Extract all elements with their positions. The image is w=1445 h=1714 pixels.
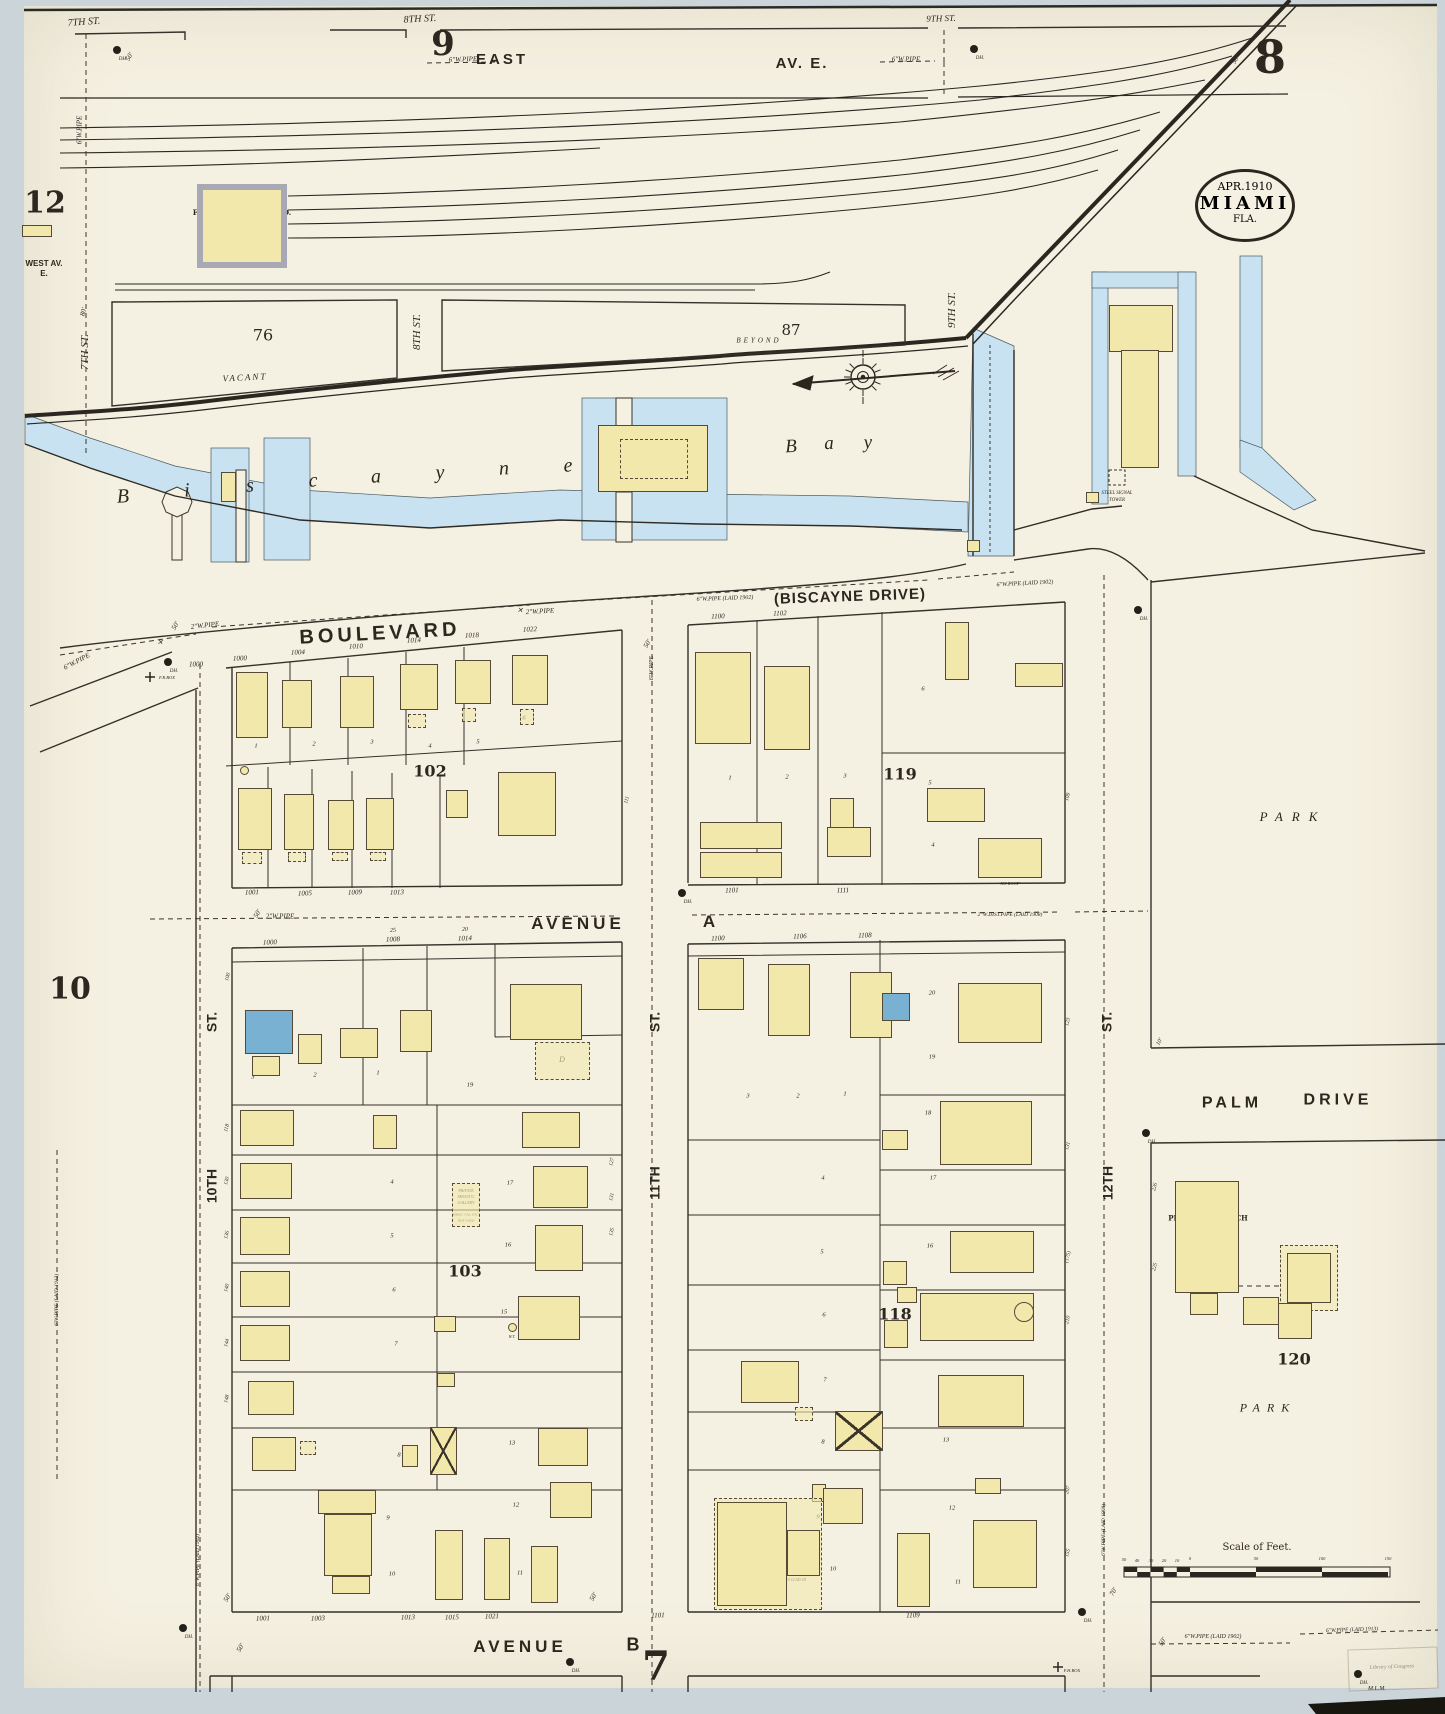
map-label: 1014	[407, 637, 421, 645]
san-carlos-hotel	[717, 1502, 787, 1606]
sheet-number: 8	[1240, 30, 1300, 84]
building	[340, 676, 374, 728]
map-label: 4	[821, 1176, 824, 1183]
double-hydrant-dot	[179, 1624, 187, 1632]
building	[408, 714, 426, 728]
double-hydrant-dot	[113, 46, 121, 54]
map-label: e	[563, 455, 573, 476]
map-label: 1111	[837, 887, 850, 895]
map-label: 5	[820, 1250, 823, 1257]
map-label: 1013	[401, 1614, 415, 1622]
map-label: 5	[476, 740, 479, 747]
building	[698, 958, 744, 1010]
map-label: 1018	[465, 632, 479, 640]
building	[328, 800, 354, 850]
label-park: PARK	[1260, 810, 1327, 824]
map-label: DH.	[684, 899, 692, 904]
building	[366, 798, 394, 850]
building	[531, 1546, 558, 1603]
steel-signal-tower-label: STEEL SIGNAL	[1102, 490, 1133, 495]
building	[240, 1217, 290, 1255]
map-label: 5	[390, 1234, 393, 1241]
help-quarters	[823, 1488, 863, 1524]
building	[437, 1373, 455, 1387]
map-label: 1001	[256, 1615, 270, 1623]
map-label: 6	[822, 1313, 825, 1320]
seal-city: MIAMI	[1198, 193, 1292, 214]
double-hydrant-dot	[1134, 606, 1142, 614]
map-label: 1	[376, 1071, 379, 1078]
map-label: 3	[370, 740, 373, 747]
building	[242, 852, 262, 864]
scan-edge	[1308, 1697, 1445, 1714]
label-9th-st: 9TH ST.	[926, 14, 956, 24]
map-label: 7	[394, 1342, 397, 1349]
building	[498, 772, 556, 836]
map-label: 1003	[311, 1615, 325, 1623]
label-avenue-b: B	[627, 1636, 640, 1655]
map-label: 4	[428, 744, 431, 751]
legend-swatch	[22, 225, 52, 237]
fec-roundhouse	[197, 184, 287, 268]
map-label: 10	[1175, 1559, 1180, 1564]
map-label: 8	[821, 1440, 824, 1447]
label-11th-st: 11TH	[648, 1166, 663, 1199]
map-label: 1	[728, 776, 731, 783]
map-label: 13	[943, 1438, 950, 1445]
label-park: PARK	[1240, 1402, 1296, 1415]
map-label: B	[785, 437, 798, 458]
fair-building	[1121, 350, 1159, 468]
map-label: 6"W.PIPE	[649, 656, 655, 680]
label-10th-st: ST.	[205, 1012, 220, 1032]
map-label: n	[498, 458, 509, 479]
auto-house	[897, 1287, 917, 1303]
curios-shop	[1015, 663, 1063, 687]
map-label: 2"W.DIST.PIPE (LAID 1908)	[978, 912, 1043, 918]
map-label: 6"W.PIPE	[76, 116, 83, 145]
building	[795, 1407, 813, 1421]
map-label: DH.	[1148, 1139, 1156, 1144]
adjacent-sheet-10: 10	[49, 973, 91, 1005]
building	[332, 852, 348, 861]
map-label: 1000	[263, 939, 277, 947]
building	[1243, 1297, 1279, 1325]
map-label: 13	[509, 1441, 516, 1448]
building	[508, 1323, 517, 1332]
map-label: 2	[796, 1094, 799, 1101]
label-palm-drive: DRIVE	[1304, 1093, 1373, 1110]
map-label: 1	[254, 744, 257, 751]
map-label: 2"W.PIPE	[526, 608, 555, 617]
building	[288, 852, 306, 862]
map-label: 1000	[233, 655, 247, 663]
map-label: B	[116, 486, 129, 508]
building	[940, 1101, 1032, 1165]
building	[520, 709, 534, 725]
double-hydrant-dot	[1078, 1608, 1086, 1616]
building	[252, 1056, 280, 1076]
map-label: DH.	[119, 56, 127, 61]
building	[245, 1010, 293, 1054]
building	[741, 1361, 799, 1403]
map-label: 1005	[298, 890, 312, 898]
unfinished-building	[978, 838, 1042, 878]
building	[973, 1520, 1037, 1588]
label-west-av-e: WEST AV.	[25, 260, 62, 268]
seal-date: APR.1910	[1198, 180, 1292, 193]
map-label: 30	[1149, 1559, 1154, 1564]
trinity-church	[318, 1490, 376, 1514]
map-label: 9	[386, 1516, 389, 1523]
label-8th-st: 8TH ST.	[412, 314, 424, 350]
map-label: 25	[390, 928, 396, 935]
map-label: 4	[931, 843, 934, 850]
map-label: 12	[513, 1503, 520, 1510]
building	[700, 852, 782, 878]
map-label: 1102	[773, 610, 787, 618]
map-label: DH.	[170, 668, 178, 673]
building	[446, 790, 468, 818]
building	[240, 1163, 292, 1199]
label-10th-st: 10TH	[205, 1169, 220, 1203]
building	[975, 1478, 1001, 1494]
yacht-club	[620, 439, 688, 479]
building	[700, 822, 782, 849]
label-12th-st: ST.	[1100, 1012, 1115, 1032]
label-9th-st: 9TH ST.	[947, 292, 959, 328]
map-label: 1	[843, 1092, 846, 1099]
map-label: a	[370, 466, 381, 487]
map-label: 6"W.PIPE (LAID 1902)	[195, 1534, 201, 1586]
map-label: 6	[392, 1288, 395, 1295]
building	[300, 1441, 316, 1455]
building	[370, 852, 386, 861]
building	[835, 1411, 883, 1451]
publisher-seal: APR.1910 MIAMI FLA.	[1195, 169, 1295, 242]
building	[252, 1437, 296, 1471]
map-label: 2	[785, 775, 788, 782]
map-label: DH.	[1140, 616, 1148, 621]
map-label: 50	[1254, 1557, 1259, 1562]
office-building	[897, 1533, 930, 1607]
map-label: 1021	[485, 1613, 499, 1621]
map-label: F.R.BOX	[159, 676, 175, 681]
map-label: 1015	[445, 1614, 459, 1622]
map-label: c	[308, 470, 318, 491]
building	[430, 1427, 457, 1475]
building	[298, 1034, 322, 1064]
building	[402, 1445, 418, 1467]
building	[282, 680, 312, 728]
map-label: 1008	[386, 936, 400, 944]
building	[522, 1112, 580, 1148]
block-102: 102	[413, 764, 446, 781]
map-label: ✕	[157, 639, 163, 646]
map-label: i	[184, 480, 191, 501]
block-120: 120	[1277, 1352, 1310, 1369]
double-hydrant-dot	[970, 45, 978, 53]
building	[240, 766, 249, 775]
map-label: 1101	[651, 1612, 665, 1620]
map-label: 150	[1385, 1557, 1392, 1562]
map-label: 6"W.PIPE (LAID 1902)	[1185, 1634, 1242, 1640]
building	[535, 1225, 583, 1271]
map-label: 4	[390, 1180, 393, 1187]
building	[400, 664, 438, 710]
label-11th-st: ST.	[648, 1012, 663, 1032]
building	[434, 1316, 456, 1332]
map-label: 5	[928, 781, 931, 788]
beyond-label: BEYOND	[736, 337, 781, 344]
map-label: 1109	[906, 1612, 920, 1620]
label-avenue-b: AVENUE	[473, 1638, 567, 1656]
building	[373, 1115, 397, 1149]
surveyor-initials: M.L.M.	[1368, 1686, 1386, 1692]
map-label: 1022	[523, 626, 537, 634]
map-label: 16	[927, 1244, 934, 1251]
building	[695, 652, 751, 744]
trinity-church	[324, 1514, 372, 1576]
map-label: 1004	[291, 649, 305, 657]
map-label: 1100	[711, 935, 725, 943]
building	[455, 660, 491, 704]
building	[340, 1028, 378, 1058]
map-label: W.T.	[509, 1335, 516, 1339]
map-label: 1014	[458, 935, 472, 943]
label-avenue-a: A	[703, 913, 715, 931]
building	[950, 1231, 1034, 1273]
map-label: 10	[389, 1572, 396, 1579]
double-hydrant-dot	[164, 658, 172, 666]
map-label: 100	[1319, 1557, 1326, 1562]
building	[236, 672, 268, 738]
building	[938, 1375, 1024, 1427]
building	[435, 1530, 463, 1600]
building	[927, 788, 985, 822]
map-label: 15	[501, 1310, 508, 1317]
map-label: 0	[1189, 1557, 1191, 1562]
label-west-av-e: E.	[40, 270, 48, 278]
map-label: 20	[462, 927, 468, 934]
adjacent-sheet-7: 7	[642, 1646, 670, 1688]
map-label: 20	[1162, 1559, 1167, 1564]
map-label: 2	[312, 742, 315, 749]
map-label: 18	[925, 1111, 932, 1118]
map-label: 6"W.PIPE (LAID 1912)	[54, 1274, 60, 1326]
building	[240, 1325, 290, 1361]
map-label: 6"W.PIPE	[892, 56, 921, 63]
map-label: 17	[507, 1181, 514, 1188]
map-label: 50	[1122, 1558, 1127, 1563]
building	[518, 1296, 580, 1340]
double-hydrant-dot	[678, 889, 686, 897]
map-label: 1013	[390, 889, 404, 897]
map-label: 8	[397, 1453, 400, 1460]
block-87: 87	[781, 323, 800, 339]
map-label: 1101	[725, 887, 739, 895]
building	[967, 540, 980, 552]
map-label: 2	[313, 1073, 316, 1080]
building	[1278, 1303, 1312, 1339]
fair-building	[1109, 305, 1173, 352]
building	[484, 1538, 510, 1600]
map-label: NO ROOF	[1000, 882, 1019, 887]
map-label: 1010	[349, 643, 363, 651]
map-label: y	[435, 462, 445, 483]
seal-state: FLA.	[1198, 214, 1292, 225]
label-avenue-a: AVENUE	[531, 915, 625, 933]
building	[512, 655, 548, 705]
map-label: 20	[929, 991, 936, 998]
map-label: 1009	[348, 889, 362, 897]
building	[550, 1482, 592, 1518]
presbyterian-church	[1190, 1293, 1218, 1315]
building	[958, 983, 1042, 1043]
map-label: 1000	[189, 661, 203, 668]
map-label: 6"W.PIPE	[449, 56, 478, 64]
scale-title: Scale of Feet.	[1222, 1543, 1291, 1554]
building	[238, 788, 272, 850]
building	[768, 964, 810, 1036]
map-label: 11	[955, 1580, 961, 1587]
map-label: s	[246, 475, 255, 496]
label-palm-drive: PALM	[1202, 1096, 1262, 1113]
map-label: a	[824, 434, 835, 454]
map-label: DH.	[185, 1634, 193, 1639]
label-east-av-e: EAST	[476, 52, 528, 68]
building	[400, 1010, 432, 1052]
building	[538, 1428, 588, 1466]
building	[462, 708, 476, 722]
map-label: 11	[517, 1571, 523, 1578]
building	[884, 1320, 908, 1348]
block-103: 103	[448, 1264, 481, 1281]
map-label: F.H.BOX	[1064, 1669, 1080, 1674]
building	[1014, 1302, 1034, 1322]
building	[764, 666, 810, 750]
steel-signal-tower	[1109, 470, 1125, 485]
san-carlos-hotel	[787, 1530, 820, 1576]
map-label: 16	[505, 1243, 512, 1250]
map-label: DH.	[976, 55, 984, 60]
double-hydrant-dot	[566, 1658, 574, 1666]
map-label: 10	[830, 1567, 837, 1574]
map-label: 3	[746, 1094, 749, 1101]
map-label: ✕	[517, 607, 523, 614]
map-label: 12	[949, 1506, 956, 1513]
label-7th-st: 7TH ST.	[80, 334, 92, 370]
building	[240, 1271, 290, 1307]
boat-house	[221, 472, 236, 502]
presbyterian-church	[1175, 1181, 1239, 1293]
label-east-av-e: AV. E.	[776, 56, 829, 72]
auto-house	[883, 1261, 907, 1285]
building	[240, 1110, 294, 1146]
scale-bar	[1124, 1567, 1390, 1577]
map-label: 6	[921, 687, 924, 694]
auto-house	[882, 993, 910, 1021]
map-label: 7	[823, 1378, 826, 1385]
building	[452, 1183, 480, 1227]
map-label: 1108	[858, 932, 872, 940]
map-label: 2"W.PIPE	[266, 913, 295, 920]
map-label: DH.	[572, 1668, 580, 1673]
photo-studio	[945, 622, 969, 680]
map-label: 1001	[245, 889, 259, 897]
map-label: DH.	[1084, 1618, 1092, 1623]
block-76: 76	[253, 328, 273, 345]
parsonage	[1287, 1253, 1331, 1303]
building	[882, 1130, 908, 1150]
map-label: y	[863, 433, 872, 453]
building	[533, 1166, 588, 1208]
map-label: 17	[930, 1176, 937, 1183]
map-label: 1100	[711, 613, 725, 621]
map-label: 1106	[793, 933, 807, 941]
building	[535, 1042, 590, 1080]
map-label: 40	[1135, 1559, 1140, 1564]
map-label: 3	[843, 774, 846, 781]
building	[510, 984, 582, 1040]
steel-signal-tower-label: TOWER	[1109, 497, 1125, 502]
block-119: 119	[883, 767, 916, 784]
building	[248, 1381, 294, 1415]
label-12th-st: 12TH	[1101, 1166, 1116, 1200]
sanborn-map-sheet: EASTAV. E.BOULEVARD(BISCAYNE DRIVE)AVENU…	[0, 0, 1445, 1714]
map-label: 19	[467, 1083, 474, 1090]
trinity-church	[332, 1576, 370, 1594]
adjacent-sheet-12: 12	[24, 187, 66, 219]
map-label: 19	[929, 1055, 936, 1062]
double-hydrant-dot	[1142, 1129, 1150, 1137]
map-label: 6"W.PIPE (LAID 1908)	[1101, 1504, 1107, 1556]
building	[284, 794, 314, 850]
building	[827, 827, 871, 857]
building	[1086, 492, 1099, 503]
